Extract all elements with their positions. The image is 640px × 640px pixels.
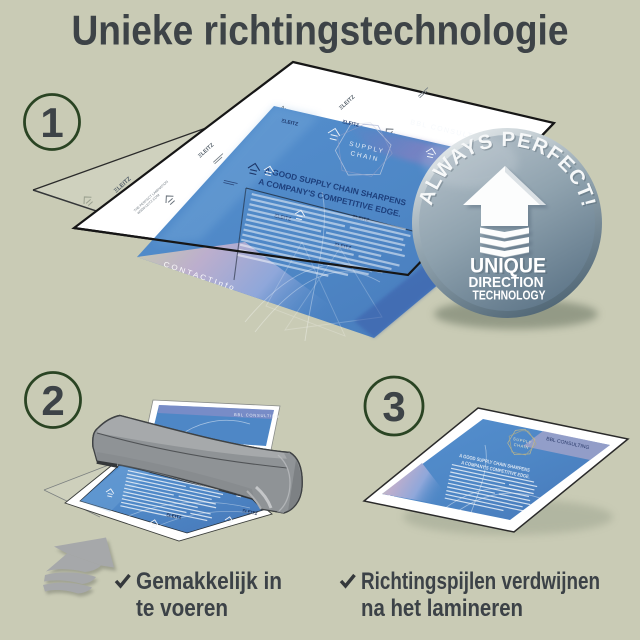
svg-text:te voeren: te voeren: [136, 595, 228, 622]
svg-text:3: 3: [382, 383, 405, 430]
svg-text:1: 1: [40, 99, 63, 146]
svg-text:Richtingspijlen verdwijnen: Richtingspijlen verdwijnen: [361, 568, 600, 595]
svg-text:2: 2: [41, 377, 64, 424]
svg-text:TECHNOLOGY: TECHNOLOGY: [473, 288, 546, 303]
svg-text:Unieke richtingstechnologie: Unieke richtingstechnologie: [72, 7, 569, 54]
svg-text:Gemakkelijk in: Gemakkelijk in: [136, 568, 282, 595]
svg-text:na het lamineren: na het lamineren: [361, 595, 523, 622]
